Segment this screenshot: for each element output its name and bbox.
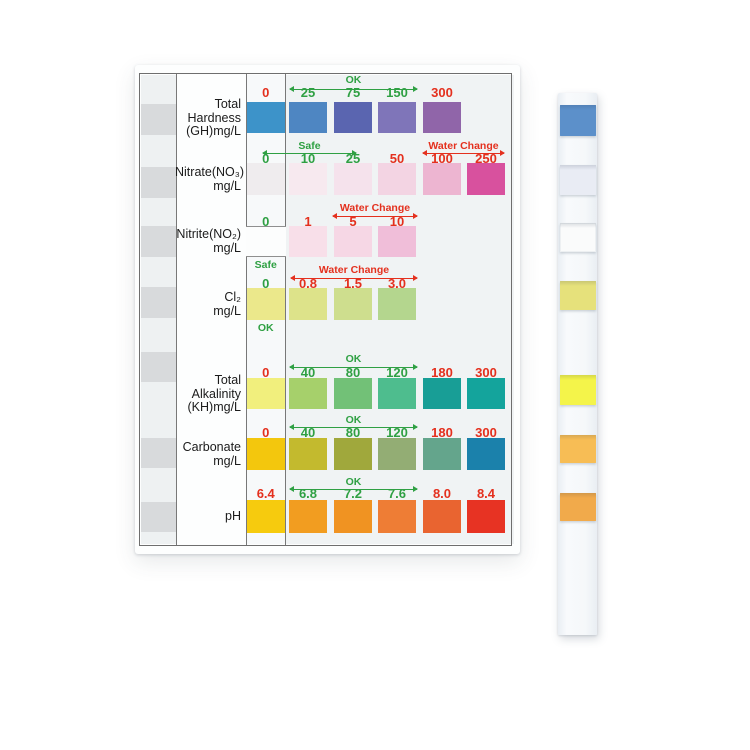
color-swatch bbox=[467, 378, 505, 409]
mini-strip-band bbox=[141, 438, 176, 468]
pad-top-shade bbox=[560, 105, 596, 110]
pad-top-shade bbox=[560, 223, 596, 228]
double-arrow bbox=[290, 427, 417, 428]
color-swatch bbox=[289, 288, 327, 320]
annotation-label: Water Change bbox=[291, 265, 417, 276]
chlorine-pad bbox=[560, 281, 596, 310]
nitrite-pad bbox=[560, 223, 596, 252]
color-swatch bbox=[289, 226, 327, 257]
color-swatch bbox=[467, 163, 505, 195]
color-swatch bbox=[423, 438, 461, 470]
color-swatch bbox=[378, 102, 416, 133]
color-swatch bbox=[423, 102, 461, 133]
alkalinity-pad bbox=[560, 375, 596, 405]
ph-pad bbox=[560, 493, 596, 521]
color-swatch bbox=[334, 226, 372, 257]
value-label: 8.0 bbox=[417, 487, 467, 500]
color-swatch bbox=[378, 288, 416, 320]
reference-swatch bbox=[247, 288, 285, 320]
color-swatch bbox=[334, 288, 372, 320]
color-swatch bbox=[289, 438, 327, 470]
color-swatch bbox=[334, 378, 372, 409]
row-label-total-alkalinity: Total Alkalinity (KH)mg/L bbox=[175, 374, 241, 415]
annotation-label: Safe bbox=[263, 141, 356, 152]
color-swatch bbox=[289, 102, 327, 133]
pad-top-shade bbox=[560, 435, 596, 440]
annotation-label: OK bbox=[290, 354, 417, 365]
mini-strip-band bbox=[141, 226, 176, 257]
double-arrow bbox=[263, 153, 356, 154]
mini-strip-band bbox=[141, 352, 176, 382]
value-label: 300 bbox=[417, 86, 467, 99]
zero-note: Safe bbox=[239, 260, 293, 271]
color-swatch bbox=[467, 438, 505, 470]
mini-strip-band bbox=[141, 104, 176, 135]
pad-top-shade bbox=[560, 165, 596, 170]
color-swatch bbox=[289, 500, 327, 533]
annotation-label: OK bbox=[290, 477, 417, 488]
double-arrow bbox=[290, 89, 417, 90]
color-swatch bbox=[423, 163, 461, 195]
color-swatch bbox=[289, 378, 327, 409]
color-swatch bbox=[467, 500, 505, 533]
color-swatch bbox=[378, 500, 416, 533]
annotation-label: OK bbox=[290, 415, 417, 426]
annotation-label: Water Change bbox=[423, 141, 504, 152]
row-label-nitrite: Nitrite(NO₂) mg/L bbox=[175, 228, 241, 255]
test-strip bbox=[558, 93, 597, 635]
value-label: 75 bbox=[328, 86, 378, 99]
carbonate-pad bbox=[560, 435, 596, 463]
row-label-total-hardness: Total Hardness (GH)mg/L bbox=[175, 98, 241, 139]
mini-strip-band bbox=[141, 167, 176, 198]
double-arrow bbox=[290, 489, 417, 490]
color-swatch bbox=[423, 378, 461, 409]
color-swatch bbox=[378, 226, 416, 257]
double-arrow bbox=[333, 216, 417, 217]
color-swatch bbox=[334, 102, 372, 133]
reference-swatch bbox=[247, 163, 285, 195]
chart-card: Total Hardness (GH)mg/L02575150300OKNitr… bbox=[135, 65, 520, 554]
color-swatch bbox=[289, 163, 327, 195]
double-arrow bbox=[291, 278, 417, 279]
total-hardness-pad bbox=[560, 105, 596, 136]
zero-empty-cell bbox=[246, 226, 286, 257]
value-label: 8.4 bbox=[461, 487, 511, 500]
reference-swatch bbox=[247, 102, 285, 133]
color-swatch bbox=[378, 378, 416, 409]
row-label-nitrate: Nitrate(NO₃) mg/L bbox=[175, 166, 241, 193]
double-arrow bbox=[290, 367, 417, 368]
color-swatch bbox=[334, 500, 372, 533]
pad-top-shade bbox=[560, 281, 596, 286]
mini-strip-band bbox=[141, 502, 176, 532]
mini-strip-band bbox=[141, 287, 176, 318]
row-label-chlorine: Cl₂ mg/L bbox=[175, 291, 241, 318]
reference-swatch bbox=[247, 438, 285, 470]
color-swatch bbox=[378, 163, 416, 195]
reference-swatch bbox=[247, 378, 285, 409]
annotation-label: Water Change bbox=[333, 203, 417, 214]
reference-swatch bbox=[247, 500, 285, 533]
color-swatch bbox=[423, 500, 461, 533]
pad-top-shade bbox=[560, 375, 596, 380]
annotation-label: OK bbox=[290, 75, 417, 86]
row-label-carbonate: Carbonate mg/L bbox=[175, 441, 241, 468]
color-swatch bbox=[334, 438, 372, 470]
zero-note: OK bbox=[239, 323, 293, 334]
nitrate-pad bbox=[560, 165, 596, 195]
double-arrow bbox=[423, 153, 504, 154]
page: Total Hardness (GH)mg/L02575150300OKNitr… bbox=[0, 0, 750, 750]
pad-top-shade bbox=[560, 493, 596, 498]
color-swatch bbox=[334, 163, 372, 195]
row-label-ph: pH bbox=[175, 510, 241, 524]
color-swatch bbox=[378, 438, 416, 470]
